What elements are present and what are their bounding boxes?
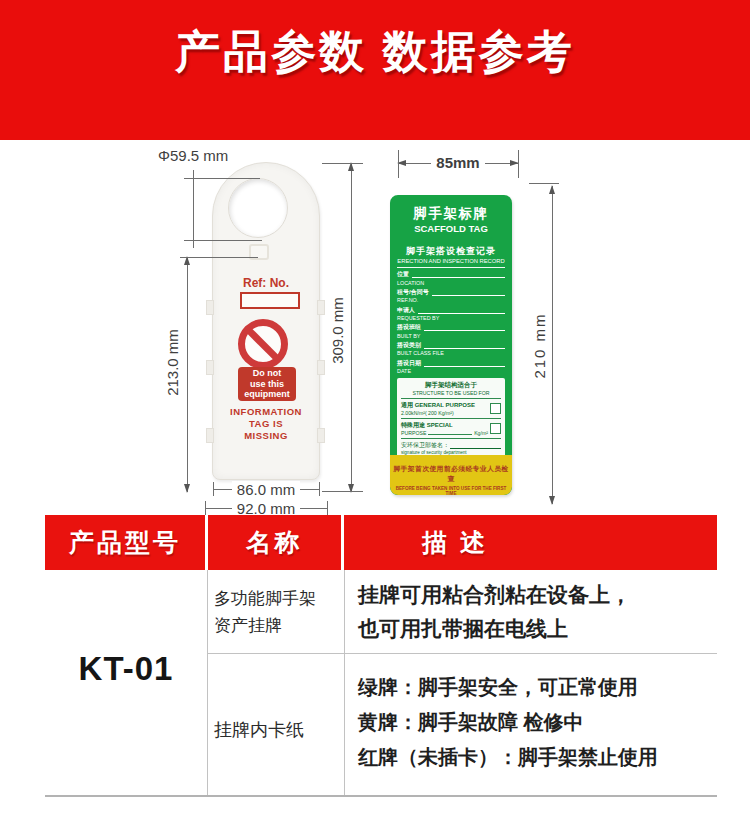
dim-inner-width: 86.0 mm bbox=[212, 481, 320, 498]
card-field-refno: 租号/合同号 REF.NO. bbox=[397, 288, 505, 304]
dim-line bbox=[187, 257, 188, 492]
tag-notch bbox=[206, 360, 214, 375]
tag-notch bbox=[206, 300, 214, 315]
do-not-use-warning: Do not use this equipment bbox=[238, 367, 296, 401]
dim-line bbox=[552, 186, 553, 504]
dim-hole-diameter: Φ59.5 mm bbox=[158, 147, 228, 164]
card-field-built-class: 搭设类别 BUILT CLASS FILE bbox=[397, 341, 505, 357]
dim-line bbox=[529, 183, 559, 184]
special-purpose-row: 特殊用途 SPECIAL PURPOSEKg/m² bbox=[401, 418, 501, 438]
card-title-cn: 脚手架标牌 bbox=[397, 205, 505, 223]
dim-line bbox=[180, 257, 258, 258]
ref-no-box bbox=[240, 292, 300, 309]
dim-line bbox=[193, 170, 194, 248]
dim-body-height: 213.0 mm bbox=[164, 323, 181, 403]
dim-line bbox=[351, 163, 352, 492]
description-cell-row1: 挂牌可用粘合剂粘在设备上， 也可用扎带捆在电线上 bbox=[358, 578, 631, 646]
table-header-description: 描 述 bbox=[344, 515, 717, 570]
table-gridline bbox=[207, 570, 208, 796]
dim-line bbox=[184, 240, 262, 241]
card-subtitle-en: ERECTION AND INSPECTION RECORD bbox=[397, 258, 505, 264]
table-header-name: 名称 bbox=[208, 515, 341, 570]
card-field-date: 搭设日期 DATE bbox=[397, 359, 505, 375]
checkbox bbox=[490, 423, 501, 434]
table-header-model: 产品型号 bbox=[45, 515, 205, 570]
checkbox bbox=[490, 403, 501, 414]
dim-total-height: 309.0 mm bbox=[329, 291, 346, 371]
structure-panel: 脚手架结构适合于 STRUCTURE TO BE USED FOR 通用 GEN… bbox=[397, 378, 505, 457]
page-title: 产品参数 数据参考 bbox=[0, 0, 750, 82]
dim-line bbox=[322, 491, 363, 492]
tag-notch bbox=[317, 360, 325, 375]
banner: 产品参数 数据参考 bbox=[0, 0, 750, 140]
card-field-requested-by: 申请人 REQUESTED BY bbox=[397, 306, 505, 322]
model-cell: KT-01 bbox=[45, 650, 207, 688]
table-bottom-border bbox=[45, 795, 717, 797]
description-cell-row2: 绿牌：脚手架安全，可正常使用 黄牌：脚手架故障 检修中 红牌（未插卡）：脚手架禁… bbox=[358, 670, 658, 775]
tag-notch bbox=[317, 300, 325, 315]
dim-card-width: 85mm bbox=[398, 154, 518, 171]
dim-line bbox=[518, 150, 519, 178]
card-field-location: 位置 LOCATION bbox=[397, 270, 505, 286]
no-entry-icon bbox=[238, 319, 288, 369]
card-subtitle-cn: 脚手架搭设检查记录 bbox=[397, 245, 505, 258]
card-field-built-by: 搭设班组 BUILT BY bbox=[397, 323, 505, 339]
name-cell-row2: 挂牌内卡纸 bbox=[214, 718, 304, 742]
dim-line bbox=[184, 178, 260, 179]
dim-card-height: 210 mm bbox=[531, 306, 548, 386]
signature-row: 安环保卫部签名： signature of security departmen… bbox=[401, 438, 501, 455]
dim-line bbox=[322, 163, 363, 164]
first-use-notice: 脚手架首次使用前必须经专业人员检查 BEFORE BEING TAKEN INT… bbox=[390, 455, 512, 495]
table-gridline bbox=[207, 653, 717, 654]
name-cell-row1: 多功能脚手架 资产挂牌 bbox=[214, 585, 316, 639]
general-purpose-row: 通用 GENERAL PURPOSE 2.00kN/m²( 200 Kg/m²) bbox=[401, 398, 501, 418]
scaffold-tag-card: 脚手架标牌 SCAFFOLD TAG 脚手架搭设检查记录 ERECTION AN… bbox=[390, 195, 512, 495]
divider bbox=[397, 267, 505, 268]
information-missing-label: INFORMATION TAG IS MISSING bbox=[212, 406, 320, 442]
table-gridline bbox=[344, 570, 345, 796]
card-title-en: SCAFFOLD TAG bbox=[397, 223, 505, 234]
ref-no-label: Ref: No. bbox=[212, 276, 320, 290]
dim-line bbox=[327, 501, 328, 515]
tag-hanging-hole bbox=[228, 178, 288, 238]
